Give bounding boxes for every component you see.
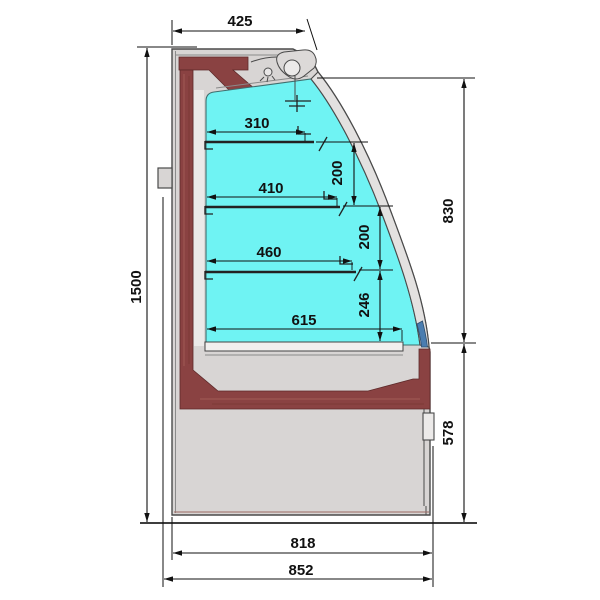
technical-drawing-page: 425 1500 830 578 310 — [0, 0, 600, 600]
dim-label-615: 615 — [291, 312, 316, 329]
dim-label-200-upper: 200 — [329, 160, 346, 185]
dim-label-410: 410 — [258, 180, 283, 197]
dim-label-310: 310 — [244, 115, 269, 132]
bottom-deck — [205, 342, 403, 351]
dim-top-depth: 425 — [172, 13, 317, 50]
light-bulb-icon — [264, 68, 272, 76]
dim-label-246: 246 — [356, 292, 373, 317]
rear-mounting-tab — [158, 168, 172, 188]
cabinet-body — [158, 49, 434, 515]
dim-label-460: 460 — [256, 244, 281, 261]
dim-label-578: 578 — [440, 420, 457, 445]
dim-label-200-lower: 200 — [356, 224, 373, 249]
dim-label-830: 830 — [440, 198, 457, 223]
front-bumper — [423, 413, 434, 440]
dim-label-1500: 1500 — [128, 270, 145, 303]
air-duct-gap — [194, 90, 204, 346]
dim-base-height: 578 — [440, 344, 464, 522]
dim-label-852: 852 — [288, 562, 313, 579]
lamp-tube-icon — [284, 60, 300, 76]
dim-label-425: 425 — [227, 13, 252, 30]
dim-label-818: 818 — [290, 535, 315, 552]
display-case-section-drawing: 425 1500 830 578 310 — [0, 0, 600, 600]
